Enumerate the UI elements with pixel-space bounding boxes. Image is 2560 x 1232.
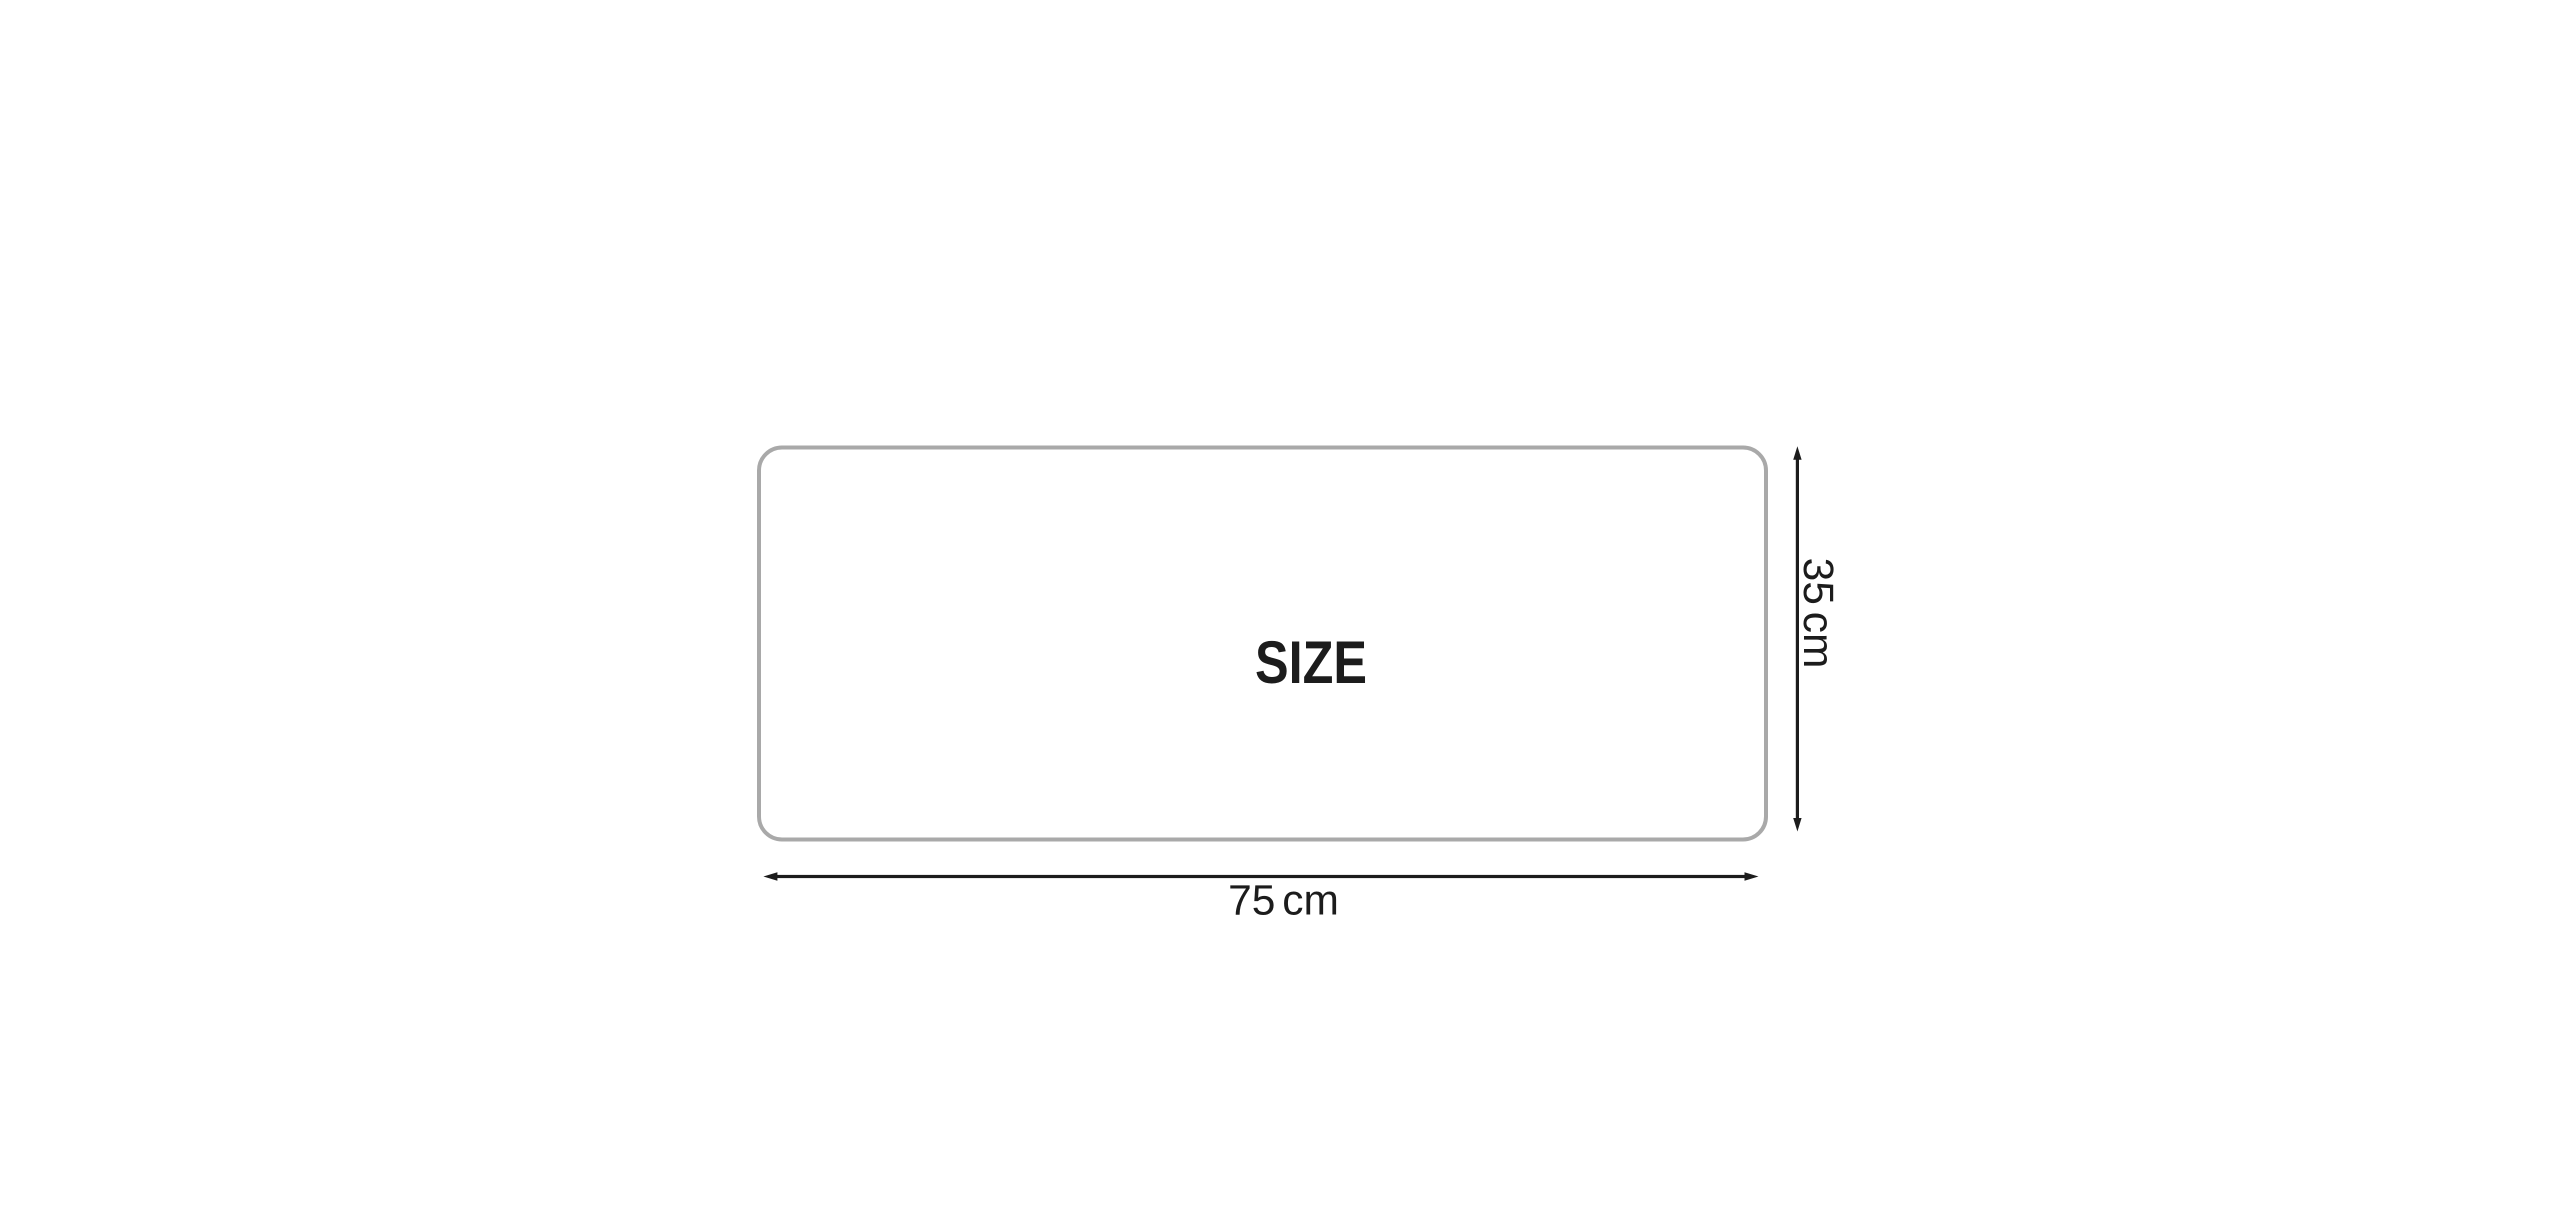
svg-text:35 cm: 35 cm: [1794, 558, 1841, 669]
svg-text:75 cm: 75 cm: [1228, 878, 1339, 925]
svg-text:SIZE: SIZE: [1255, 629, 1367, 696]
